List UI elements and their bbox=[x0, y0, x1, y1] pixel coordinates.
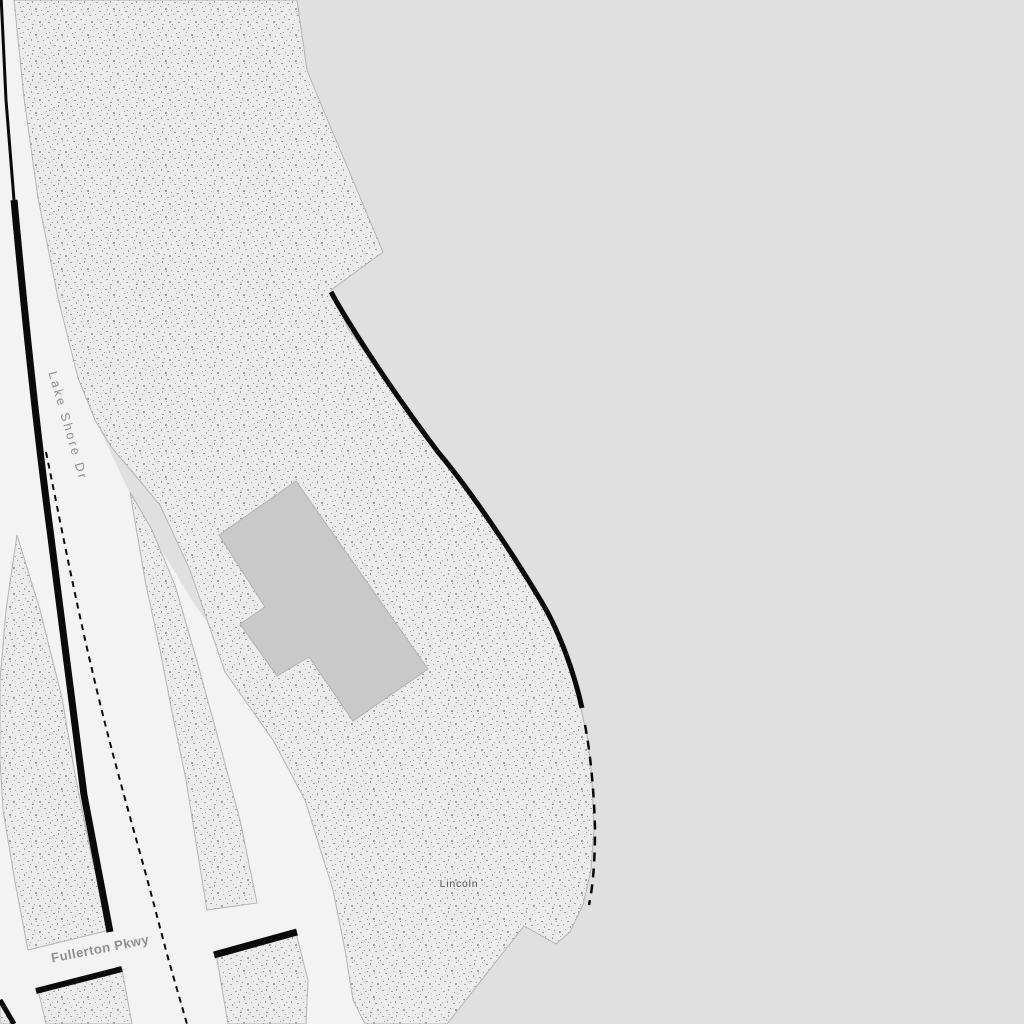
map-viewport[interactable]: Lake Shore Dr Fullerton Pkwy Lincoln bbox=[0, 0, 1024, 1024]
map-canvas: Lake Shore Dr Fullerton Pkwy Lincoln bbox=[0, 0, 1024, 1024]
place-label-lincoln: Lincoln bbox=[440, 878, 479, 890]
